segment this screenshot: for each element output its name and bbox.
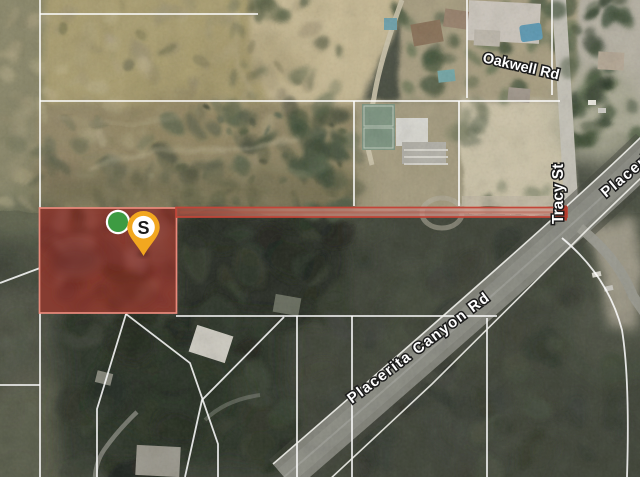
svg-text:S: S — [137, 218, 149, 238]
svg-text:Tracy St: Tracy St — [550, 164, 567, 224]
